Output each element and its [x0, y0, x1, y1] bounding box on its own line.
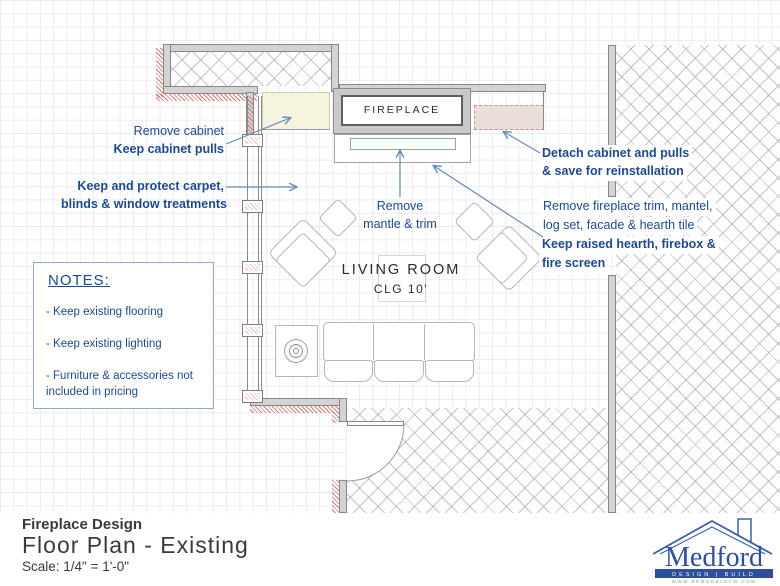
sofa-cushion — [425, 360, 474, 382]
notes-item-2: - Keep existing lighting — [46, 337, 162, 353]
wall-right-lower — [608, 275, 616, 513]
room-label: LIVING ROOM CLG 10' — [340, 262, 462, 296]
fireplace-label: FIREPLACE — [364, 104, 440, 116]
note-keep-hearth-2: fire screen — [539, 255, 608, 273]
wall-door-jamb-lower — [339, 480, 347, 513]
cabinet-left-remove — [262, 92, 330, 130]
logo-tagline: DESIGN | BUILD — [672, 572, 756, 578]
notes-box: NOTES: - Keep existing flooring - Keep e… — [33, 262, 214, 409]
window-mullion-4 — [242, 324, 263, 337]
room-name: LIVING ROOM — [340, 262, 462, 278]
notes-title: NOTES: — [48, 271, 110, 291]
wall-block-top — [163, 44, 339, 52]
floor-plan-sheet: FIREPLACE LIVING R — [0, 0, 780, 586]
note-keep-cabinet-pulls: Keep cabinet pulls — [114, 141, 224, 159]
note-remove-mantle-2: mantle & trim — [330, 216, 470, 234]
fireplace-box: FIREPLACE — [333, 88, 471, 134]
plan-grid-area: FIREPLACE LIVING R — [0, 0, 780, 513]
note-remove-fireplace-2: log set, facade & hearth tile — [540, 217, 697, 235]
logo-website: WWW.REMODELDFW.COM — [672, 579, 757, 584]
note-keep-hearth-1: Keep raised hearth, firebox & — [539, 236, 719, 254]
logo-company-name: Medford — [665, 542, 763, 573]
sofa-cushion — [374, 360, 424, 382]
sofa-back — [323, 322, 475, 362]
wall-room-bottom — [250, 398, 347, 406]
note-detach-cabinet-1: Detach cabinet and pulls — [539, 145, 692, 163]
sofa-cushion — [324, 360, 373, 382]
project-title: Fireplace Design — [22, 516, 142, 533]
window-mullion-3 — [242, 261, 263, 274]
note-remove-fireplace-1: Remove fireplace trim, mantel, — [540, 198, 716, 216]
note-detach-cabinet-2: & save for reinstallation — [539, 163, 687, 181]
demo-hatch-block-bottom — [156, 94, 257, 101]
note-keep-carpet-1: Keep and protect carpet, — [77, 178, 224, 196]
scale-label: Scale: 1/4" = 1'-0" — [22, 559, 129, 574]
cabinet-right-endcap — [543, 92, 544, 130]
medford-logo: Medford DESIGN | BUILD WWW.REMODELDFW.CO… — [650, 514, 778, 584]
note-keep-carpet-2: blinds & window treatments — [61, 196, 227, 214]
notes-item-1: - Keep existing flooring — [46, 305, 163, 321]
note-remove-cabinet: Remove cabinet — [134, 123, 224, 141]
demo-hatch-door-upper — [332, 412, 339, 423]
hearth-tile-outline — [350, 138, 456, 150]
lamp-table — [275, 325, 318, 377]
note-remove-mantle: Remove mantle & trim — [330, 198, 470, 233]
lamp-icon — [284, 339, 308, 363]
wall-block-right — [331, 44, 339, 92]
window-mullion-2 — [242, 200, 263, 213]
notes-item-3: - Furniture & accessories not included i… — [46, 369, 204, 400]
note-remove-mantle-1: Remove — [330, 198, 470, 216]
door-leaf — [347, 421, 404, 426]
cabinet-right-detach — [474, 105, 544, 130]
sheet-title: Floor Plan - Existing — [22, 532, 249, 559]
window-mullion-5 — [242, 390, 263, 403]
sofa — [323, 322, 475, 383]
demo-hatch-block-left — [156, 48, 163, 98]
wall-door-jamb-upper — [339, 398, 347, 422]
demo-hatch-door-lower — [332, 480, 339, 513]
window-mullion-1 — [242, 134, 263, 147]
room-ceiling-height: CLG 10' — [340, 282, 462, 296]
wall-block-bottom — [163, 86, 258, 94]
